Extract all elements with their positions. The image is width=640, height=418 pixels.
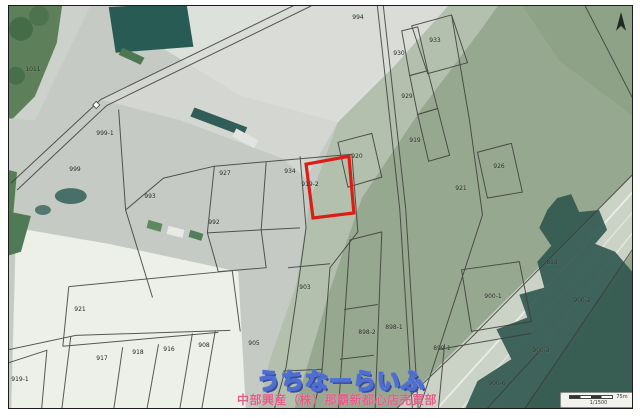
scale-bar-line xyxy=(569,395,613,399)
watermark-company: 中部興産（株）那覇新都心店売買部 xyxy=(237,391,437,408)
scale-distance: 75m xyxy=(616,395,627,400)
scale-bar-rule: 75m xyxy=(569,395,627,400)
aerial-map: 1011999-1999993927934919-299493393092991… xyxy=(8,5,633,409)
cadastral-aerial-map-page: 1011999-1999993927934919-299493393092991… xyxy=(0,0,640,418)
map-graphic xyxy=(9,6,632,408)
photo-layer xyxy=(9,6,632,408)
scale-ratio: 1/1500 xyxy=(590,401,608,406)
scale-bar: 75m 1/1500 xyxy=(560,392,633,408)
